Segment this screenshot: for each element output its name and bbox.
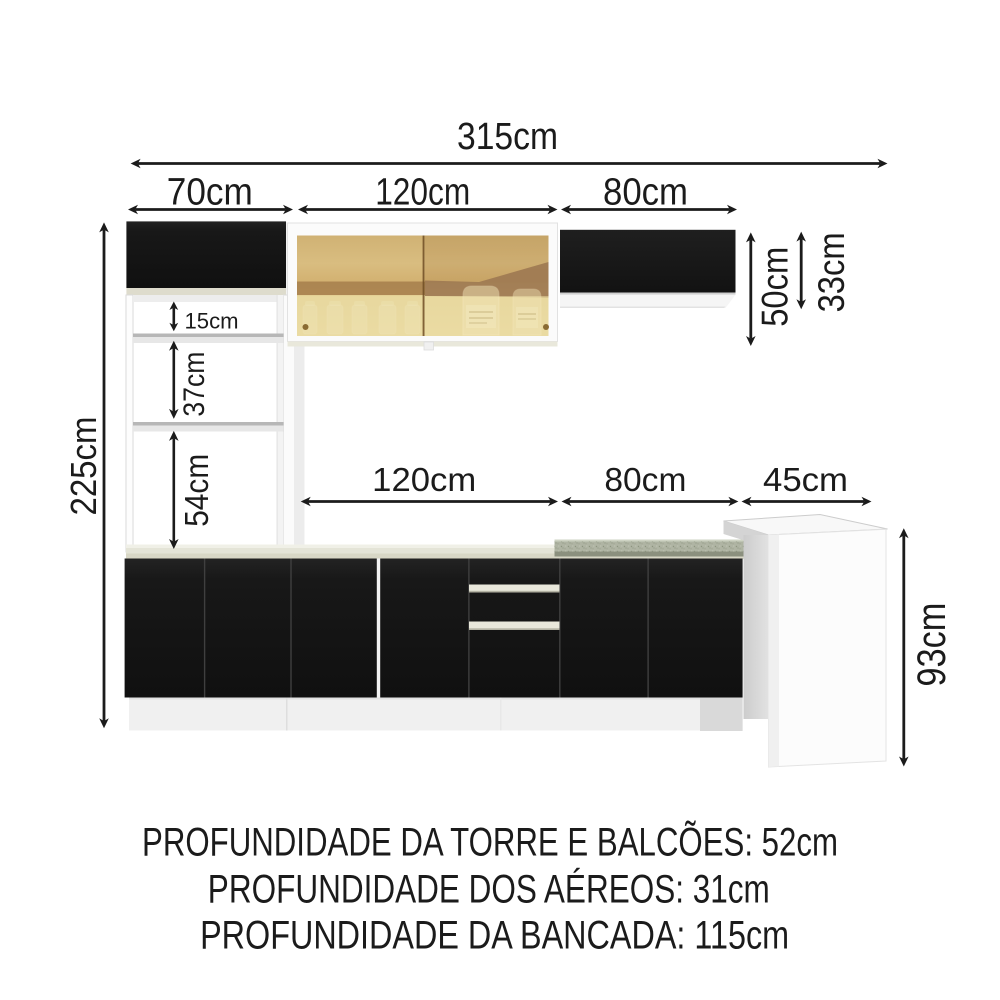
svg-text:80cm: 80cm xyxy=(603,172,688,214)
svg-text:37cm: 37cm xyxy=(178,352,211,417)
svg-text:PROFUNDIDADE DA TORRE E BALCÕE: PROFUNDIDADE DA TORRE E BALCÕES: 52cm xyxy=(142,820,838,865)
svg-text:120cm: 120cm xyxy=(375,172,470,214)
svg-text:54cm: 54cm xyxy=(178,454,215,527)
svg-text:120cm: 120cm xyxy=(372,461,476,498)
svg-text:45cm: 45cm xyxy=(763,461,848,498)
svg-text:225cm: 225cm xyxy=(63,417,104,516)
svg-text:PROFUNDIDADE DA BANCADA: 115cm: PROFUNDIDADE DA BANCADA: 115cm xyxy=(200,914,789,958)
svg-text:93cm: 93cm xyxy=(910,603,954,687)
svg-text:33cm: 33cm xyxy=(811,232,852,312)
svg-text:15cm: 15cm xyxy=(185,308,239,333)
svg-text:50cm: 50cm xyxy=(754,247,795,327)
svg-text:315cm: 315cm xyxy=(457,116,558,158)
svg-text:80cm: 80cm xyxy=(604,461,686,498)
svg-text:PROFUNDIDADE DOS AÉREOS: 31cm: PROFUNDIDADE DOS AÉREOS: 31cm xyxy=(208,867,770,912)
svg-text:70cm: 70cm xyxy=(167,172,253,214)
